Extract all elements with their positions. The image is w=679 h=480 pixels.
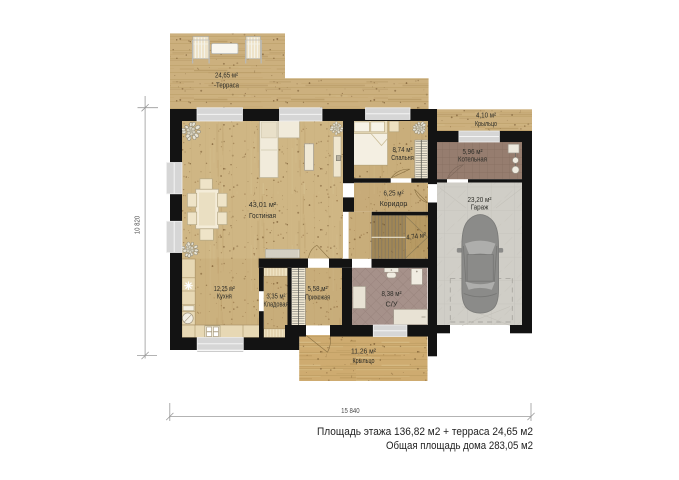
svg-text:43,01 м²: 43,01 м² <box>249 200 277 209</box>
svg-text:Общая площадь дома 283,05 м2: Общая площадь дома 283,05 м2 <box>386 440 533 452</box>
svg-text:-Терраса: -Терраса <box>214 81 239 90</box>
svg-text:Спальня: Спальня <box>391 153 414 162</box>
svg-text:11,26 м²: 11,26 м² <box>351 346 377 355</box>
svg-text:Площадь этажа 136,82 м2 + терр: Площадь этажа 136,82 м2 + терраса 24,65 … <box>317 426 533 438</box>
svg-text:Крыльцо: Крыльцо <box>475 119 497 128</box>
svg-text:Крыльцо: Крыльцо <box>353 356 375 365</box>
svg-text:Кухня: Кухня <box>217 292 232 301</box>
svg-text:Гостиная: Гостиная <box>249 211 276 220</box>
svg-text:Прихожая: Прихожая <box>305 293 330 302</box>
svg-text:Гараж: Гараж <box>471 203 489 212</box>
svg-text:Котельная: Котельная <box>458 155 487 164</box>
svg-text:15 840: 15 840 <box>341 406 360 415</box>
svg-text:24,65 м²: 24,65 м² <box>215 71 239 80</box>
svg-text:Кладовая: Кладовая <box>264 300 289 309</box>
svg-text:8,38 м²: 8,38 м² <box>382 289 403 298</box>
svg-text:С/У: С/У <box>386 300 398 309</box>
svg-text:10 820: 10 820 <box>133 216 142 235</box>
svg-text:6,25 м²: 6,25 м² <box>384 189 405 198</box>
svg-text:Коридор: Коридор <box>380 199 408 208</box>
